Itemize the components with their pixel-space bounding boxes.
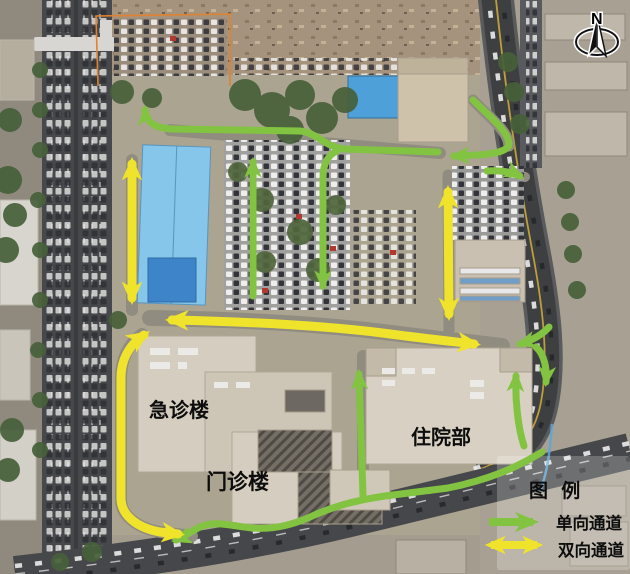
- route-east-vertical-twoway: [448, 192, 449, 314]
- highway-traffic-northbound: [81, 0, 107, 574]
- legend-one-way-label: 单向通道: [556, 513, 623, 533]
- label-inpatient-building: 住院部: [411, 425, 471, 449]
- legend-title: 图 例: [529, 479, 584, 502]
- compass-north-label: N: [591, 11, 603, 28]
- hospital-traffic-map: 急诊楼 门诊楼 住院部 图 例 单向通道 双向通道 N: [0, 0, 630, 574]
- label-emergency-building: 急诊楼: [149, 398, 209, 422]
- aerial-map-canvas: 急诊楼 门诊楼 住院部 图 例 单向通道 双向通道 N: [0, 0, 630, 574]
- east-parking-rows: [352, 210, 416, 306]
- highway-traffic-southbound: [46, 0, 72, 574]
- blue-pitched-roof: [148, 258, 196, 302]
- right-parking-deck: [452, 166, 524, 240]
- route-center-north-entry: [359, 374, 363, 496]
- elevated-highway: [34, 0, 118, 574]
- label-outpatient-building: 门诊楼: [206, 470, 269, 494]
- ridged-roof-a: [258, 430, 332, 472]
- legend-two-way-label: 双向通道: [558, 540, 625, 560]
- north-parking-lot: [114, 18, 226, 76]
- northeast-service-road: [520, 0, 542, 168]
